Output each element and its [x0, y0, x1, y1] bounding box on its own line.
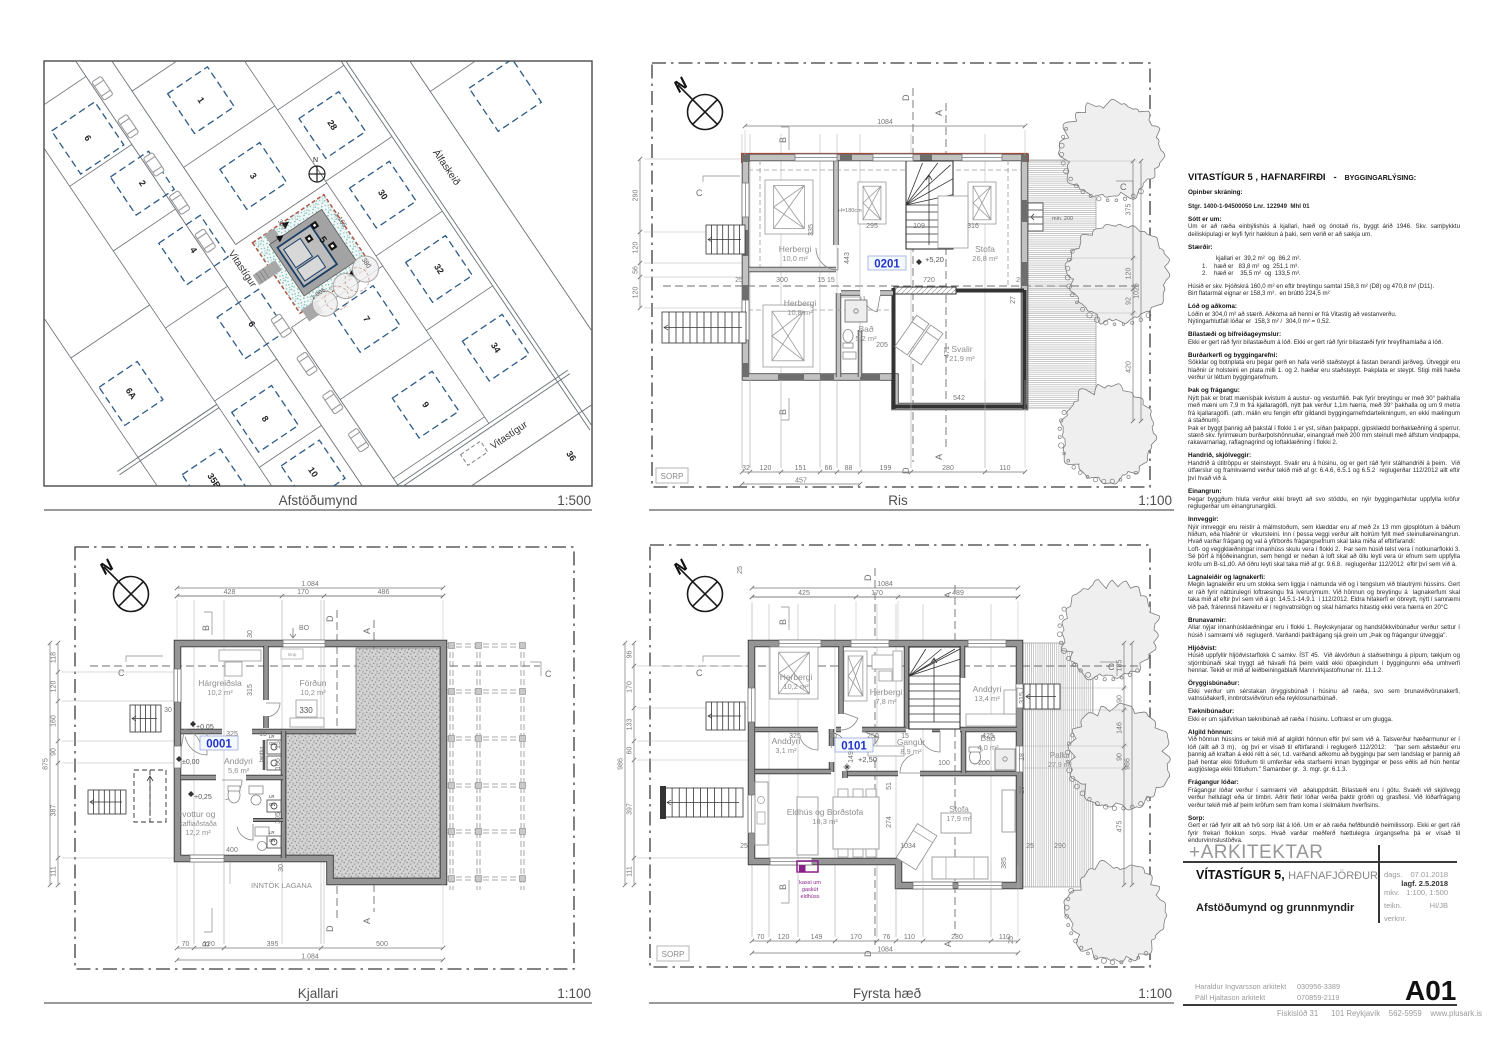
- svg-text:199: 199: [880, 465, 892, 472]
- svg-text:+0,25: +0,25: [194, 794, 212, 801]
- svg-text:400: 400: [226, 847, 238, 854]
- svg-text:B: B: [778, 619, 788, 625]
- svg-text:18: 18: [1019, 753, 1026, 761]
- svg-text:4,0 m²: 4,0 m²: [977, 743, 999, 752]
- svg-text:1:100: 1:100: [1138, 986, 1172, 1001]
- svg-text:111: 111: [627, 866, 634, 877]
- svg-text:15: 15: [259, 731, 267, 738]
- svg-text:A: A: [934, 454, 944, 460]
- svg-text:gaskút: gaskút: [802, 887, 819, 893]
- svg-text:290: 290: [633, 190, 640, 202]
- svg-text:Hárgreiðsla: Hárgreiðsla: [198, 678, 242, 688]
- svg-text:133: 133: [627, 719, 634, 731]
- svg-text:70: 70: [757, 934, 765, 941]
- svg-text:542: 542: [953, 395, 965, 402]
- svg-text:N: N: [313, 157, 318, 164]
- svg-text:25: 25: [735, 277, 743, 284]
- svg-text:66: 66: [825, 465, 833, 472]
- svg-text:10,0 m²: 10,0 m²: [782, 254, 808, 263]
- svg-text:15: 15: [901, 733, 909, 740]
- svg-text:315: 315: [247, 684, 254, 696]
- svg-text:B: B: [778, 884, 788, 890]
- svg-text:170: 170: [297, 589, 309, 596]
- svg-text:Herbergi: Herbergi: [870, 687, 903, 697]
- svg-text:B: B: [778, 137, 788, 143]
- svg-text:111: 111: [51, 866, 58, 877]
- svg-text:170: 170: [627, 681, 634, 693]
- svg-text:27: 27: [1010, 296, 1017, 304]
- svg-text:92: 92: [1126, 297, 1133, 305]
- svg-text:12,2 m²: 12,2 m²: [185, 828, 211, 837]
- svg-text:457: 457: [795, 478, 807, 485]
- svg-text:13,4 m²: 13,4 m²: [974, 694, 1000, 703]
- svg-text:330: 330: [299, 706, 313, 715]
- svg-text:420: 420: [1126, 361, 1133, 373]
- svg-text:15 15: 15 15: [817, 277, 835, 284]
- svg-text:Þvottur og: Þvottur og: [177, 809, 216, 819]
- svg-text:25: 25: [737, 566, 744, 574]
- svg-text:395: 395: [267, 941, 279, 948]
- svg-text:A: A: [943, 941, 953, 947]
- svg-text:GN: GN: [269, 802, 275, 807]
- svg-text:D: D: [863, 574, 873, 581]
- svg-text:N: N: [96, 555, 118, 578]
- svg-text:5,2 m²: 5,2 m²: [855, 334, 877, 343]
- svg-text:51: 51: [886, 782, 893, 790]
- svg-text:250: 250: [867, 733, 879, 740]
- svg-text:D: D: [325, 925, 335, 932]
- svg-text:471: 471: [944, 346, 951, 358]
- svg-text:B: B: [201, 625, 211, 631]
- svg-text:0101: 0101: [841, 741, 867, 753]
- svg-text:Svalir: Svalir: [951, 344, 972, 354]
- svg-text:min. 200: min. 200: [1052, 216, 1073, 222]
- svg-text:±0,00: ±0,00: [182, 759, 200, 766]
- svg-text:120: 120: [203, 941, 215, 948]
- svg-text:875: 875: [43, 758, 50, 770]
- svg-text:C: C: [1108, 662, 1115, 672]
- svg-text:96: 96: [627, 651, 634, 659]
- svg-text:INNTÖK LAGANA: INNTÖK LAGANA: [251, 881, 312, 890]
- svg-text:Ris: Ris: [888, 493, 908, 508]
- svg-text:720: 720: [923, 277, 935, 284]
- svg-text:335: 335: [808, 224, 815, 236]
- svg-text:LR: LR: [269, 734, 274, 739]
- svg-text:280: 280: [942, 465, 954, 472]
- svg-text:D: D: [863, 950, 873, 957]
- svg-text:26,8 m²: 26,8 m²: [972, 254, 998, 263]
- svg-text:25: 25: [740, 843, 748, 850]
- svg-text:þvottur: þvottur: [259, 746, 265, 762]
- svg-text:120: 120: [760, 465, 772, 472]
- svg-text:1084: 1084: [877, 947, 893, 954]
- svg-text:205: 205: [876, 342, 888, 349]
- svg-text:0001: 0001: [206, 739, 232, 751]
- svg-text:18,3 m²: 18,3 m²: [812, 817, 838, 826]
- svg-text:Herbergi: Herbergi: [779, 244, 812, 254]
- svg-text:8,9 m²: 8,9 m²: [900, 747, 922, 756]
- svg-text:D: D: [325, 615, 335, 622]
- svg-text:280: 280: [951, 934, 963, 941]
- svg-text:Herbergi: Herbergi: [784, 298, 817, 308]
- svg-text:397: 397: [627, 803, 634, 815]
- svg-text:SORP: SORP: [662, 950, 685, 959]
- svg-text:166: 166: [275, 758, 282, 770]
- svg-text:Pallur: Pallur: [1050, 751, 1071, 760]
- svg-text:27,9 m²: 27,9 m²: [1048, 762, 1072, 769]
- svg-text:120: 120: [778, 934, 790, 941]
- svg-text:3,1 m²: 3,1 m²: [775, 746, 797, 755]
- svg-text:BO: BO: [299, 625, 310, 632]
- svg-text:300: 300: [776, 277, 788, 284]
- svg-text:N: N: [670, 73, 692, 96]
- svg-text:Anddyri: Anddyri: [973, 684, 1002, 694]
- svg-text:1034: 1034: [900, 843, 916, 850]
- svg-text:88: 88: [845, 465, 853, 472]
- svg-text:Kjallari: Kjallari: [298, 986, 339, 1001]
- svg-text:375: 375: [1126, 204, 1133, 216]
- svg-text:Eldhús og Borðstofa: Eldhús og Borðstofa: [787, 807, 864, 817]
- svg-text:D: D: [901, 94, 911, 101]
- svg-text:385: 385: [1001, 857, 1008, 869]
- svg-text:316: 316: [967, 223, 979, 230]
- svg-text:1:500: 1:500: [557, 493, 591, 508]
- svg-text:185: 185: [1117, 660, 1124, 672]
- svg-text:200: 200: [978, 760, 990, 767]
- svg-text:A: A: [362, 918, 372, 924]
- svg-text:C: C: [696, 668, 703, 678]
- svg-text:1084: 1084: [877, 581, 893, 588]
- svg-text:+5,20: +5,20: [925, 255, 944, 264]
- svg-text:Anddyri: Anddyri: [224, 756, 253, 766]
- svg-text:H=180cm: H=180cm: [838, 208, 862, 214]
- svg-text:15: 15: [275, 741, 282, 749]
- svg-text:Stofa: Stofa: [975, 244, 995, 254]
- svg-text:315: 315: [1019, 692, 1026, 704]
- svg-text:30: 30: [164, 707, 172, 714]
- svg-text:100: 100: [938, 760, 950, 767]
- svg-text:290: 290: [1054, 843, 1066, 850]
- svg-text:305: 305: [275, 812, 282, 824]
- svg-text:10,2 m²: 10,2 m²: [207, 688, 233, 697]
- svg-text:295: 295: [866, 223, 878, 230]
- svg-text:120: 120: [51, 681, 58, 693]
- svg-text:Fyrsta hæð: Fyrsta hæð: [853, 986, 921, 1001]
- svg-text:109: 109: [913, 223, 925, 230]
- svg-text:5,6 m²: 5,6 m²: [228, 766, 250, 775]
- svg-text:120: 120: [633, 242, 640, 254]
- svg-text:110: 110: [999, 465, 1010, 472]
- svg-text:387: 387: [51, 805, 58, 817]
- svg-text:1.084: 1.084: [301, 581, 319, 588]
- svg-text:325: 325: [789, 733, 801, 740]
- svg-text:56: 56: [633, 266, 640, 274]
- svg-text:170: 170: [850, 934, 862, 941]
- svg-text:1084: 1084: [877, 119, 893, 126]
- svg-text:500: 500: [376, 941, 388, 948]
- svg-text:118: 118: [51, 652, 58, 663]
- svg-text:425: 425: [798, 590, 810, 597]
- svg-text:30: 30: [278, 864, 285, 872]
- svg-text:+0,05: +0,05: [196, 724, 214, 731]
- svg-text:151: 151: [795, 465, 807, 472]
- svg-text:LR: LR: [269, 830, 274, 835]
- svg-text:428: 428: [224, 589, 236, 596]
- svg-text:25: 25: [1026, 843, 1034, 850]
- svg-text:+2,50: +2,50: [858, 755, 877, 764]
- svg-text:90: 90: [1117, 753, 1124, 761]
- svg-text:18: 18: [1019, 786, 1026, 794]
- svg-text:110: 110: [904, 934, 915, 941]
- svg-text:160: 160: [51, 715, 58, 727]
- svg-text:eldhúss: eldhúss: [801, 894, 820, 900]
- svg-text:Herbergi: Herbergi: [780, 672, 813, 682]
- svg-text:Stofa: Stofa: [949, 804, 969, 814]
- svg-text:146: 146: [1117, 722, 1124, 734]
- svg-text:425: 425: [982, 733, 994, 740]
- svg-text:60: 60: [627, 747, 634, 755]
- svg-text:C: C: [1120, 182, 1127, 192]
- svg-text:A: A: [934, 110, 944, 116]
- svg-text:32: 32: [742, 465, 750, 472]
- svg-text:SORP: SORP: [661, 472, 684, 481]
- svg-text:489: 489: [952, 590, 964, 597]
- svg-text:10,2 m²: 10,2 m²: [783, 682, 809, 691]
- svg-text:LR: LR: [269, 794, 274, 799]
- svg-text:C: C: [545, 669, 552, 679]
- svg-text:1.084: 1.084: [301, 954, 319, 961]
- svg-text:0201: 0201: [874, 259, 900, 271]
- svg-text:10,8 m²: 10,8 m²: [787, 308, 813, 317]
- svg-text:986: 986: [618, 758, 625, 770]
- svg-text:30: 30: [247, 630, 254, 638]
- svg-text:C: C: [118, 668, 125, 678]
- svg-text:443: 443: [844, 252, 851, 264]
- svg-text:25: 25: [1008, 936, 1015, 944]
- svg-text:76: 76: [883, 934, 891, 941]
- svg-text:120: 120: [633, 287, 640, 299]
- svg-text:70: 70: [182, 941, 190, 948]
- svg-text:C: C: [696, 188, 703, 198]
- svg-text:7,8 m²: 7,8 m²: [875, 697, 897, 706]
- svg-text:kaffiaðstaða: kaffiaðstaða: [179, 820, 217, 828]
- svg-text:986: 986: [1125, 758, 1132, 770]
- svg-text:10,2 m²: 10,2 m²: [300, 688, 326, 697]
- svg-text:274: 274: [886, 816, 893, 828]
- svg-text:21,9 m²: 21,9 m²: [949, 354, 975, 363]
- svg-text:Bað: Bað: [858, 324, 873, 334]
- svg-text:Afstöðumynd: Afstöðumynd: [279, 493, 358, 508]
- svg-text:1:100: 1:100: [1138, 493, 1172, 508]
- svg-text:N: N: [670, 555, 692, 578]
- svg-text:GN: GN: [269, 838, 275, 843]
- svg-text:149: 149: [848, 751, 855, 763]
- svg-text:Innp: Innp: [288, 652, 297, 657]
- svg-text:Förðun: Förðun: [300, 678, 327, 688]
- svg-text:475: 475: [1117, 821, 1124, 833]
- svg-text:B: B: [778, 409, 788, 415]
- svg-text:17,9 m²: 17,9 m²: [946, 814, 972, 823]
- svg-text:20: 20: [829, 733, 837, 740]
- svg-text:486: 486: [378, 589, 390, 596]
- svg-text:120: 120: [1126, 268, 1133, 280]
- svg-text:170: 170: [871, 590, 883, 597]
- svg-text:149: 149: [811, 934, 823, 941]
- svg-text:90: 90: [51, 748, 58, 756]
- svg-text:A: A: [362, 628, 372, 634]
- svg-text:1026: 1026: [1134, 283, 1141, 299]
- svg-text:kassi um: kassi um: [799, 880, 821, 886]
- svg-text:1:100: 1:100: [557, 986, 591, 1001]
- svg-text:25: 25: [1016, 277, 1024, 284]
- svg-text:325: 325: [226, 731, 238, 738]
- svg-text:90: 90: [1117, 695, 1124, 703]
